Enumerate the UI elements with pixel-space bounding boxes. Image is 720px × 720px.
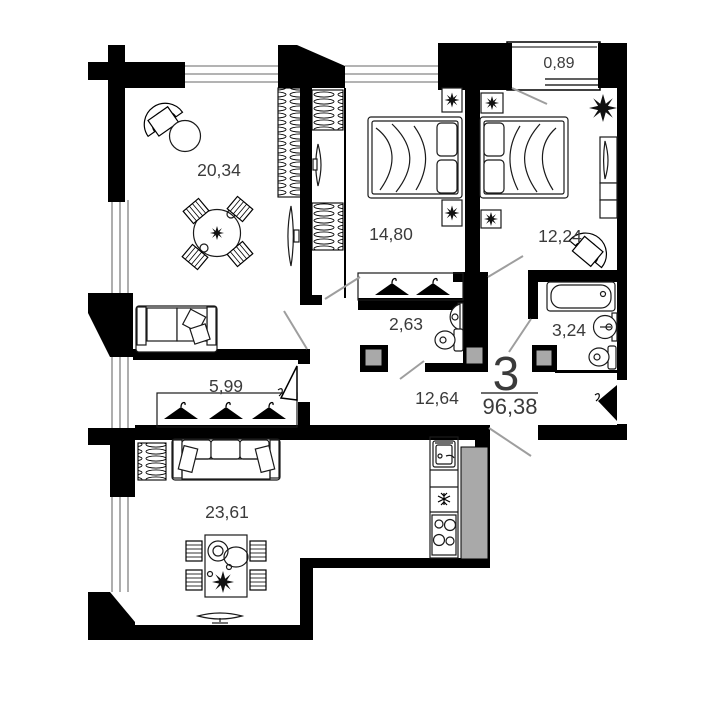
- room-area-balcony: 0,89: [543, 55, 574, 72]
- window-living-left: [106, 200, 130, 295]
- room-area-kitchen-living: 23,61: [205, 502, 249, 522]
- floor-plan: 20,34 14,80 12,24 0,89 2,63 3,24 5,99 12…: [0, 0, 720, 720]
- bathtub-icon: [547, 282, 615, 311]
- window-kitchen-left: [112, 497, 128, 592]
- wardrobe-icon: [312, 90, 343, 130]
- dining-table-icon: [205, 535, 248, 597]
- room-area-bedroom1: 14,80: [369, 224, 413, 244]
- sofa-icon: [136, 306, 217, 352]
- door-leaf-icon: [325, 277, 360, 299]
- fridge-snowflake-icon: [438, 493, 450, 505]
- vent-shaft-wc-left: [365, 349, 382, 366]
- total-area: 96,38: [482, 394, 537, 419]
- sofa-icon: [172, 439, 280, 480]
- bed-icon: [368, 117, 462, 198]
- plant-icon: [589, 94, 617, 122]
- cabinet-icon: [138, 443, 166, 480]
- room-area-bedroom2: 12,24: [538, 226, 582, 246]
- vent-shaft-wc-right: [466, 347, 483, 364]
- window-living-top: [185, 66, 278, 82]
- stove-icon: [432, 515, 456, 555]
- room-area-living: 20,34: [197, 160, 241, 180]
- bed-icon: [480, 117, 568, 198]
- door-leaf-icon: [488, 256, 523, 277]
- room-area-corridor: 12,64: [415, 388, 459, 408]
- nightstand-icon: [442, 88, 462, 112]
- wardrobe-hangers-icon: [157, 393, 297, 427]
- vent-shaft-kitchen: [461, 447, 488, 559]
- tv-icon: [288, 206, 299, 266]
- window-hall-left: [112, 357, 128, 428]
- toilet-icon: [589, 346, 616, 369]
- wardrobe-icon: [312, 203, 343, 250]
- room-area-hall: 5,99: [209, 376, 243, 396]
- chair-icon: [250, 570, 266, 590]
- wardrobe-hangers-icon: [358, 273, 463, 300]
- nightstand-icon: [481, 210, 501, 228]
- room-area-bathroom: 3,24: [552, 320, 586, 340]
- chair-icon: [250, 541, 266, 561]
- door-leaf-icon: [284, 311, 307, 349]
- chair-icon: [186, 570, 202, 590]
- nightstand-icon: [481, 93, 503, 113]
- door-leaf-icon: [400, 361, 424, 379]
- kitchen-sink-icon: [433, 441, 455, 467]
- entrance-door-icon: [595, 385, 617, 421]
- door-leaf-icon: [489, 428, 531, 456]
- kitchen-counter: [430, 437, 458, 558]
- interior-door-icon: [278, 366, 297, 400]
- vent-shaft-bathroom: [536, 350, 552, 366]
- tv-icon: [198, 613, 242, 623]
- tv-stand-icon: [600, 137, 617, 218]
- toilet-icon: [435, 329, 463, 351]
- chair-icon: [186, 541, 202, 561]
- room-area-wc: 2,63: [389, 314, 423, 334]
- nightstand-icon: [442, 200, 462, 226]
- window-bedroom1-top: [345, 66, 438, 82]
- unit-summary: 3 96,38: [481, 348, 538, 419]
- tv-icon: [313, 144, 321, 186]
- side-table-icon: [170, 121, 201, 152]
- wardrobe-icon: [278, 88, 302, 197]
- sink-icon: [594, 313, 618, 341]
- floor-plan-page: 20,34 14,80 12,24 0,89 2,63 3,24 5,99 12…: [0, 0, 720, 720]
